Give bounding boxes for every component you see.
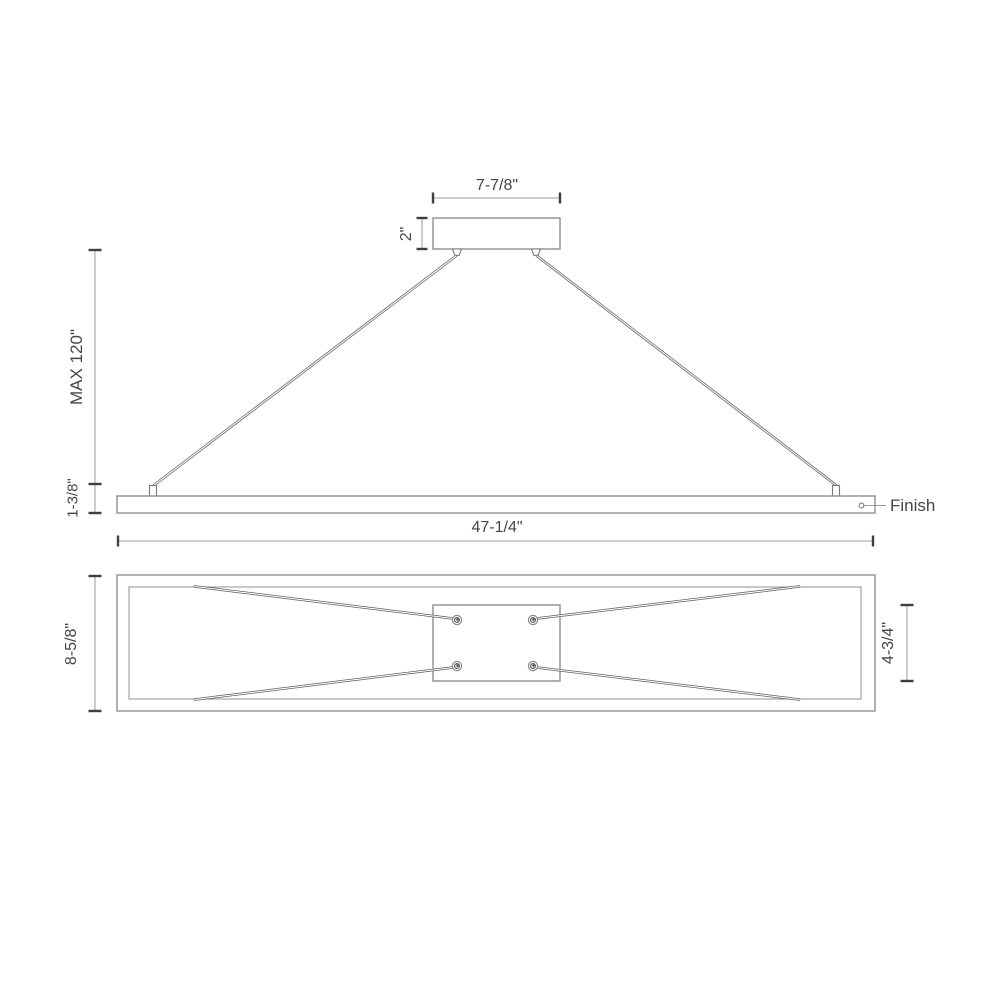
dim-label-plate-height: 4-3/4" [880, 622, 898, 664]
finish-leader-dot [859, 503, 864, 508]
screw-bottom-left [452, 661, 461, 670]
screw-bottom-right [528, 661, 537, 670]
drawing-canvas [0, 0, 1000, 1000]
canopy-plate-rect [433, 605, 560, 681]
dim-label-fixture-height: 1-3/8" [65, 478, 82, 518]
cable-left-core [154, 256, 457, 486]
screw-top-right [528, 615, 537, 624]
finish-callout-label: Finish [890, 496, 935, 516]
canopy-connector-left [453, 249, 462, 256]
cable-right-core [537, 256, 837, 486]
dim-label-canopy-height: 2" [398, 227, 416, 242]
canopy-connector-right [532, 249, 541, 256]
bottom-view [89, 575, 914, 711]
screw-top-left [452, 615, 461, 624]
cable-mount-left [150, 486, 157, 497]
dim-label-canopy-width: 7-7/8" [476, 177, 518, 195]
canopy-rect [433, 218, 560, 249]
dim-label-fixture-depth: 8-5/8" [63, 623, 81, 665]
cable-mount-right [833, 486, 840, 497]
dim-label-max-suspension: MAX 120" [67, 329, 87, 405]
side-view [89, 193, 887, 547]
fixture-bar-rect [117, 496, 875, 513]
technical-drawing: 7-7/8" 2" MAX 120" 1-3/8" 47-1/4" Finish… [0, 0, 1000, 1000]
dim-label-fixture-length: 47-1/4" [471, 519, 522, 537]
